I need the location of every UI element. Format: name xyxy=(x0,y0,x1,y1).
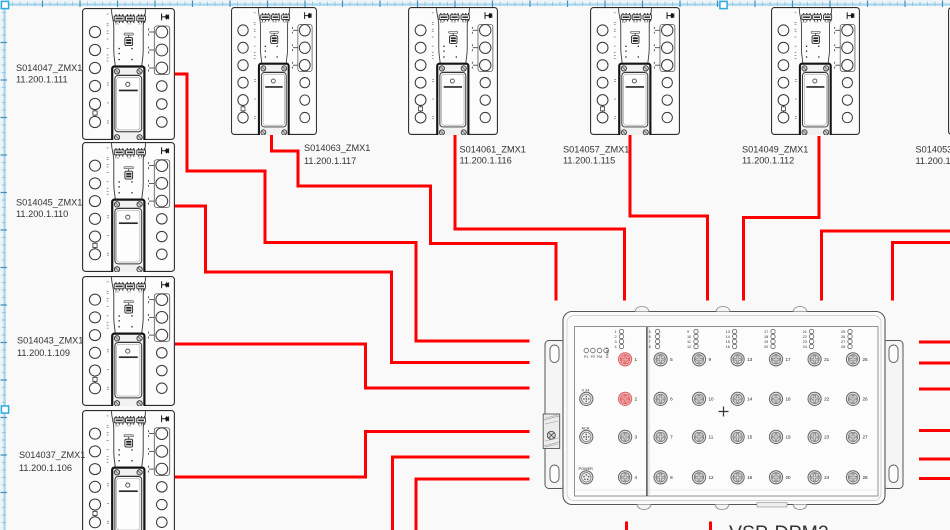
svg-text:11.200.1.106: 11.200.1.106 xyxy=(19,463,72,473)
svg-text:S014043_ZMX1: S014043_ZMX1 xyxy=(17,336,83,346)
svg-text:18: 18 xyxy=(764,335,768,339)
svg-text:S014045_ZMX1: S014045_ZMX1 xyxy=(16,198,82,208)
svg-text:24: 24 xyxy=(803,345,807,349)
svg-text:27: 27 xyxy=(863,435,869,440)
svg-text:3: 3 xyxy=(635,435,638,440)
svg-text:9: 9 xyxy=(709,357,712,362)
svg-text:12: 12 xyxy=(687,345,691,349)
svg-text:15: 15 xyxy=(747,435,753,440)
svg-text:11.200.1.115: 11.200.1.115 xyxy=(563,156,615,166)
svg-text:10: 10 xyxy=(687,335,691,339)
svg-text:11.200.1.111: 11.200.1.111 xyxy=(16,75,68,85)
svg-text:POWER: POWER xyxy=(579,467,594,471)
svg-text:11.200.1: 11.200.1 xyxy=(916,156,950,166)
svg-text:23: 23 xyxy=(803,340,807,344)
svg-text:P1: P1 xyxy=(584,355,588,359)
svg-text:P2: P2 xyxy=(591,355,595,359)
svg-text:19: 19 xyxy=(786,435,792,440)
svg-text:1: 1 xyxy=(635,357,638,362)
svg-text:3: 3 xyxy=(615,340,617,344)
svg-text:8: 8 xyxy=(670,475,673,480)
svg-text:19: 19 xyxy=(764,340,768,344)
svg-text:6: 6 xyxy=(670,397,673,402)
svg-text:11.200.1.116: 11.200.1.116 xyxy=(460,156,512,166)
svg-text:5: 5 xyxy=(670,357,673,362)
svg-text:5: 5 xyxy=(649,330,651,334)
svg-text:11.200.1.109: 11.200.1.109 xyxy=(17,348,70,358)
svg-text:4: 4 xyxy=(635,475,638,480)
svg-text:V 24: V 24 xyxy=(582,389,590,393)
svg-text:18: 18 xyxy=(786,397,792,402)
svg-text:22: 22 xyxy=(803,335,807,339)
svg-text:1: 1 xyxy=(615,330,617,334)
svg-text:16: 16 xyxy=(726,345,730,349)
svg-text:15: 15 xyxy=(726,340,730,344)
svg-text:4: 4 xyxy=(615,345,617,349)
svg-text:23: 23 xyxy=(824,435,830,440)
svg-text:13: 13 xyxy=(747,357,753,362)
svg-text:20: 20 xyxy=(764,345,768,349)
svg-text:11.200.1.117: 11.200.1.117 xyxy=(304,156,356,166)
svg-text:13: 13 xyxy=(726,330,730,334)
svg-text:25: 25 xyxy=(863,357,869,362)
svg-text:14: 14 xyxy=(747,397,753,402)
svg-text:S014049_ZMX1: S014049_ZMX1 xyxy=(742,145,808,155)
svg-text:28: 28 xyxy=(841,345,845,349)
svg-text:7: 7 xyxy=(649,340,651,344)
svg-text:24: 24 xyxy=(824,475,830,480)
svg-text:11: 11 xyxy=(687,340,691,344)
svg-text:17: 17 xyxy=(764,330,768,334)
svg-text:21: 21 xyxy=(824,357,830,362)
svg-text:VSP-DPM2: VSP-DPM2 xyxy=(729,522,829,530)
svg-text:16: 16 xyxy=(747,475,753,480)
svg-text:2: 2 xyxy=(635,397,638,402)
svg-text:26: 26 xyxy=(841,335,845,339)
svg-text:11.200.1.110: 11.200.1.110 xyxy=(16,209,68,219)
svg-text:7: 7 xyxy=(670,435,673,440)
svg-text:S014053: S014053 xyxy=(916,145,950,155)
svg-text:27: 27 xyxy=(841,340,845,344)
svg-text:11: 11 xyxy=(709,435,714,440)
svg-text:9: 9 xyxy=(687,330,689,334)
svg-text:FAULT: FAULT xyxy=(606,346,610,358)
svg-text:17: 17 xyxy=(786,357,792,362)
svg-text:25: 25 xyxy=(841,330,845,334)
svg-text:12: 12 xyxy=(709,475,715,480)
svg-text:S014037_ZMX1: S014037_ZMX1 xyxy=(19,450,85,460)
svg-text:10: 10 xyxy=(709,397,715,402)
svg-text:22: 22 xyxy=(824,397,830,402)
svg-text:21: 21 xyxy=(803,330,807,334)
svg-text:2: 2 xyxy=(615,335,617,339)
svg-text:14: 14 xyxy=(726,335,730,339)
svg-text:S014057_ZMX1: S014057_ZMX1 xyxy=(563,145,629,155)
svg-text:S014063_ZMX1: S014063_ZMX1 xyxy=(304,143,370,153)
svg-text:S014047_ZMX1: S014047_ZMX1 xyxy=(16,63,82,73)
svg-text:8: 8 xyxy=(649,345,651,349)
svg-text:28: 28 xyxy=(863,475,869,480)
svg-text:11.200.1.112: 11.200.1.112 xyxy=(742,156,794,166)
svg-text:26: 26 xyxy=(863,397,869,402)
svg-text:S014061_ZMX1: S014061_ZMX1 xyxy=(460,145,526,155)
svg-text:6: 6 xyxy=(649,335,651,339)
svg-text:FM: FM xyxy=(597,355,602,359)
svg-text:20: 20 xyxy=(786,475,792,480)
svg-text:ACA: ACA xyxy=(582,427,590,431)
